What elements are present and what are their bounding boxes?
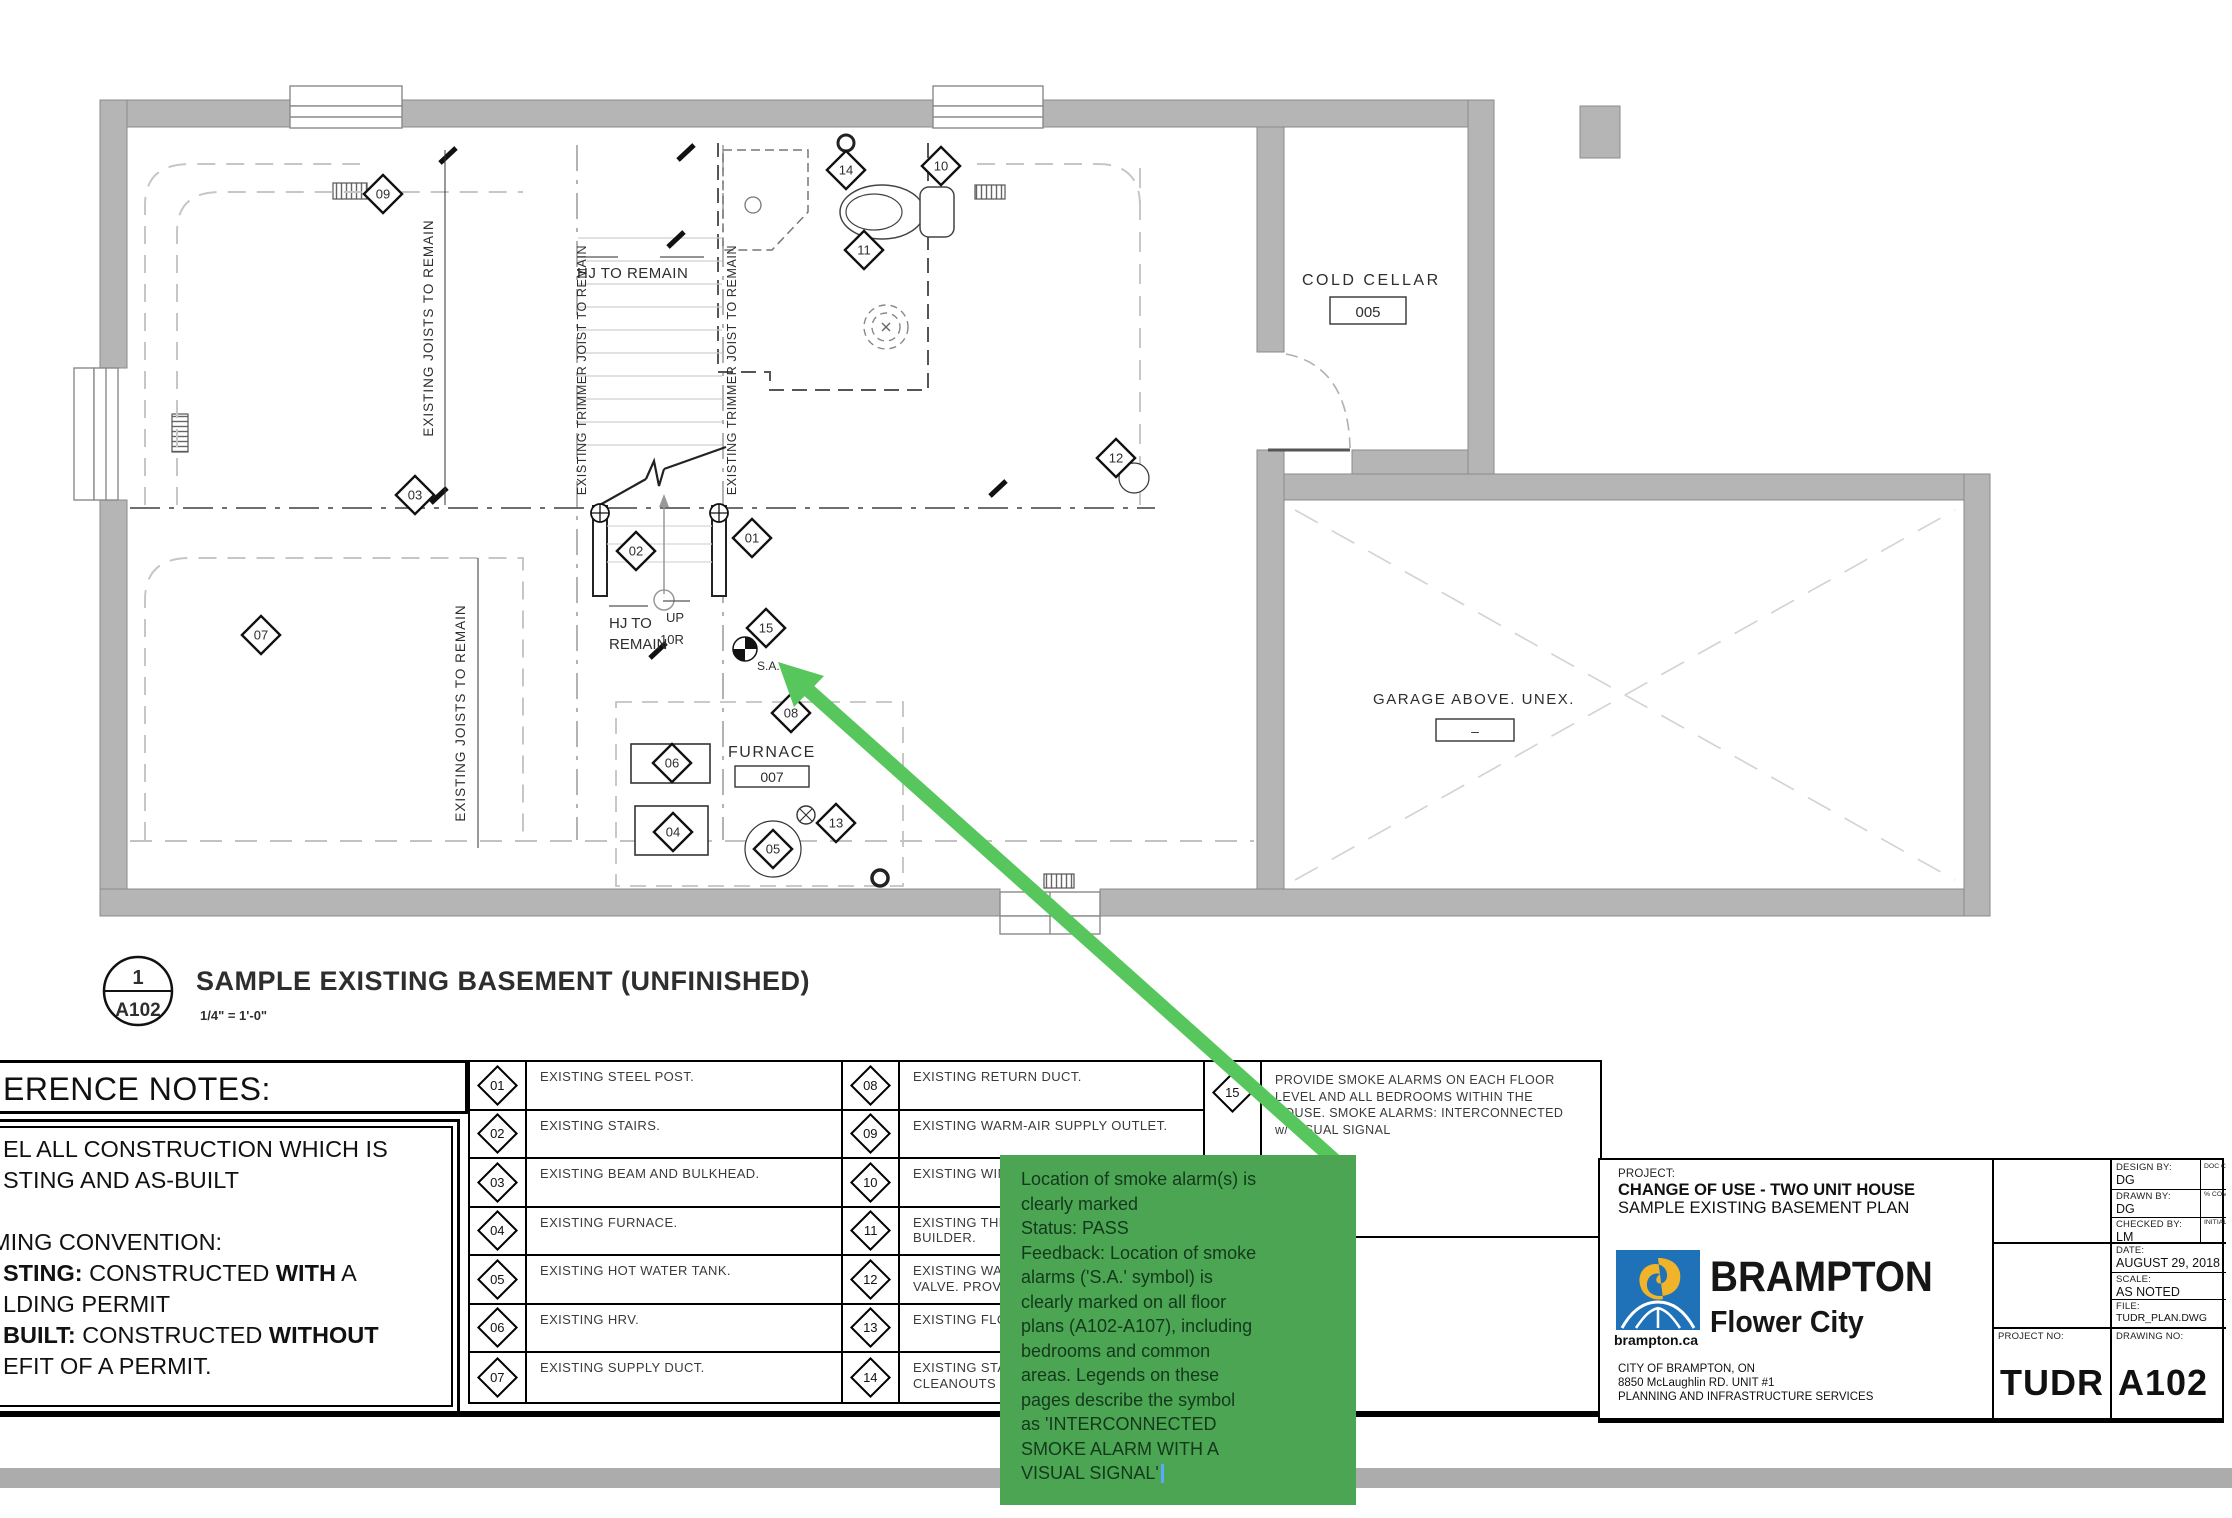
project-no: TUDR bbox=[2000, 1362, 2104, 1404]
svg-text:11: 11 bbox=[857, 243, 871, 258]
initial-field: INITIAL: bbox=[2204, 1219, 2226, 1227]
legend-column-1: 01EXISTING STEEL POST. 02EXISTING STAIRS… bbox=[468, 1060, 843, 1404]
garage-label: GARAGE ABOVE. UNEX. bbox=[1373, 691, 1575, 708]
hatch-symbols bbox=[172, 183, 1074, 888]
trimmer-label-2: EXISTING TRIMMER JOIST TO REMAIN bbox=[725, 245, 739, 495]
marker-08: 08 bbox=[772, 694, 810, 732]
legend-row: 04EXISTING FURNACE. bbox=[470, 1208, 841, 1257]
garage-number: – bbox=[1471, 723, 1479, 739]
brampton-url: brampton.ca bbox=[1614, 1332, 1698, 1348]
diamond-04-icon: 04 bbox=[477, 1210, 518, 1251]
marker-02: 02 bbox=[617, 532, 655, 570]
doc-control-field: DOC CONTROL DATE: bbox=[2204, 1163, 2226, 1171]
diamond-12-icon: 12 bbox=[850, 1259, 891, 1300]
legend-row: 07EXISTING SUPPLY DUCT. bbox=[470, 1353, 841, 1402]
diamond-10-icon: 10 bbox=[850, 1162, 891, 1203]
diamond-02-icon: 02 bbox=[477, 1113, 518, 1154]
brampton-tagline: Flower City bbox=[1710, 1304, 1864, 1340]
plan-title: SAMPLE EXISTING BASEMENT (UNFINISHED) bbox=[196, 966, 810, 996]
design-by-field: DESIGN BY:DG bbox=[2116, 1162, 2172, 1187]
svg-text:03: 03 bbox=[408, 488, 422, 503]
status-text: Status: PASS bbox=[1021, 1216, 1340, 1241]
drawing-no: A102 bbox=[2118, 1362, 2208, 1404]
marker-01: 01 bbox=[733, 519, 771, 557]
scale-field: SCALE:AS NOTED bbox=[2116, 1274, 2180, 1299]
review-annotation-box[interactable]: Location of smoke alarm(s) is clearly ma… bbox=[1000, 1155, 1356, 1505]
dashed-outlines bbox=[130, 145, 1955, 886]
svg-text:05: 05 bbox=[766, 842, 780, 857]
shower-outline bbox=[723, 150, 808, 250]
legend-row: 05EXISTING HOT WATER TANK. bbox=[470, 1256, 841, 1305]
text-cursor[interactable] bbox=[1161, 1464, 1164, 1483]
furnace-number: 007 bbox=[760, 769, 784, 785]
diamond-13-icon: 13 bbox=[850, 1307, 891, 1348]
marker-14: 14 bbox=[827, 151, 865, 189]
title-block: PROJECT: CHANGE OF USE - TWO UNIT HOUSE … bbox=[1598, 1158, 2224, 1423]
diamond-06-icon: 06 bbox=[477, 1307, 518, 1348]
svg-text:02: 02 bbox=[629, 544, 643, 559]
stair-cut-line bbox=[598, 447, 726, 506]
drawing-title-block: 1 A102 SAMPLE EXISTING BASEMENT (UNFINIS… bbox=[104, 957, 810, 1025]
reference-notes-box: EL ALL CONSTRUCTION WHICH IS STING AND A… bbox=[0, 1119, 460, 1414]
brampton-logo-icon bbox=[1616, 1250, 1700, 1330]
svg-text:08: 08 bbox=[784, 706, 798, 721]
diamond-07-icon: 07 bbox=[477, 1357, 518, 1398]
diamond-15-icon: 15 bbox=[1212, 1072, 1253, 1113]
cold-cellar-number: 005 bbox=[1355, 304, 1380, 321]
legend-row: 09EXISTING WARM-AIR SUPPLY OUTLET. bbox=[843, 1111, 1203, 1160]
legend-row: 08EXISTING RETURN DUCT. bbox=[843, 1062, 1203, 1111]
up-arrow bbox=[654, 494, 674, 610]
floor-plan: HJ TO REMAIN HJ TO REMAIN UP 10R S.A. FU… bbox=[0, 0, 2232, 1060]
reference-notes-heading: ERENCE NOTES: bbox=[0, 1060, 468, 1114]
stack-symbol bbox=[838, 135, 854, 151]
legend-row: 02EXISTING STAIRS. bbox=[470, 1111, 841, 1160]
detail-number: 1 bbox=[132, 967, 143, 989]
diamond-11-icon: 11 bbox=[850, 1210, 891, 1251]
pct-complete-field: % COMPLETE bbox=[2204, 1191, 2226, 1199]
svg-text:12: 12 bbox=[1109, 451, 1123, 466]
window-top-left bbox=[290, 86, 402, 128]
marker-13: 13 bbox=[817, 804, 855, 842]
cleanout-symbol bbox=[872, 870, 888, 886]
svg-text:15: 15 bbox=[759, 621, 773, 636]
diamond-09-icon: 09 bbox=[850, 1113, 891, 1154]
plan-scale: 1/4" = 1'-0" bbox=[200, 1008, 267, 1023]
svg-text:10: 10 bbox=[934, 159, 948, 174]
drawing-sheet: HJ TO REMAIN HJ TO REMAIN UP 10R S.A. FU… bbox=[0, 0, 2232, 1518]
pier-block bbox=[1580, 106, 1620, 158]
svg-text:14: 14 bbox=[839, 163, 853, 178]
svg-text:06: 06 bbox=[665, 756, 679, 771]
svg-text:07: 07 bbox=[254, 628, 268, 643]
diamond-01-icon: 01 bbox=[477, 1065, 518, 1106]
project-subtitle: SAMPLE EXISTING BASEMENT PLAN bbox=[1618, 1199, 1909, 1218]
detail-sheet: A102 bbox=[115, 1000, 160, 1021]
bathroom-outline bbox=[718, 143, 928, 390]
svg-text:09: 09 bbox=[376, 187, 390, 202]
project-cell: PROJECT: CHANGE OF USE - TWO UNIT HOUSE … bbox=[1600, 1160, 1992, 1420]
furnace-label: FURNACE bbox=[728, 744, 816, 761]
up-risers-label: 10R bbox=[660, 632, 684, 647]
joists-label-2: EXISTING JOISTS TO REMAIN bbox=[453, 604, 468, 821]
bathroom bbox=[718, 135, 954, 886]
trimmer-label-1: EXISTING TRIMMER JOIST TO REMAIN bbox=[575, 245, 589, 495]
cold-cellar-door-swing bbox=[1286, 354, 1350, 448]
marker-07: 07 bbox=[242, 616, 280, 654]
hj-mid-label-2: REMAIN bbox=[609, 636, 667, 653]
legend-row: 06EXISTING HRV. bbox=[470, 1305, 841, 1354]
hj-mid-label-1: HJ TO bbox=[609, 615, 652, 632]
sa-label: S.A. bbox=[757, 659, 780, 673]
equipment bbox=[631, 463, 1149, 877]
drawing-no-label: DRAWING NO: bbox=[2116, 1331, 2183, 1342]
brampton-wordmark: BRAMPTON bbox=[1710, 1253, 1933, 1302]
notes-text: EL ALL CONSTRUCTION WHICH IS STING AND A… bbox=[3, 1134, 388, 1382]
legend-row: 01EXISTING STEEL POST. bbox=[470, 1062, 841, 1111]
address-block: CITY OF BRAMPTON, ON8850 McLaughlin RD. … bbox=[1618, 1362, 1873, 1404]
svg-text:13: 13 bbox=[829, 816, 843, 831]
svg-text:01: 01 bbox=[745, 531, 759, 546]
window-top-mid bbox=[933, 86, 1043, 128]
checked-by-field: CHECKED BY:LM bbox=[2116, 1219, 2182, 1244]
marker-09: 09 bbox=[364, 175, 402, 213]
diamond-05-icon: 05 bbox=[477, 1259, 518, 1300]
project-label: PROJECT: bbox=[1618, 1168, 1675, 1180]
window-bottom bbox=[1000, 892, 1100, 934]
file-field: FILE:TUDR_PLAN.DWG bbox=[2116, 1301, 2207, 1324]
svg-text:04: 04 bbox=[666, 825, 680, 840]
joists-label-1: EXISTING JOISTS TO REMAIN bbox=[421, 219, 436, 436]
window-left bbox=[74, 368, 118, 500]
cold-cellar-label: COLD CELLAR bbox=[1302, 272, 1441, 289]
legend-row: 03EXISTING BEAM AND BULKHEAD. bbox=[470, 1159, 841, 1208]
drawn-by-field: DRAWN BY:DG bbox=[2116, 1191, 2171, 1216]
toilet-tank bbox=[920, 187, 954, 237]
up-label: UP bbox=[666, 610, 684, 625]
smoke-alarm-symbol bbox=[733, 637, 757, 661]
diamond-03-icon: 03 bbox=[477, 1162, 518, 1203]
sheet-divider-line bbox=[0, 1411, 1602, 1417]
hj-top-label: HJ TO REMAIN bbox=[577, 265, 688, 282]
project-name: CHANGE OF USE - TWO UNIT HOUSE bbox=[1618, 1181, 1915, 1200]
project-no-label: PROJECT NO: bbox=[1998, 1331, 2064, 1342]
reference-notes-title: ERENCE NOTES: bbox=[3, 1071, 271, 1107]
diamond-14-icon: 14 bbox=[850, 1357, 891, 1398]
diamond-08-icon: 08 bbox=[850, 1065, 891, 1106]
date-field: DATE:AUGUST 29, 2018 bbox=[2116, 1245, 2220, 1270]
floor-drain-2 bbox=[797, 806, 815, 824]
